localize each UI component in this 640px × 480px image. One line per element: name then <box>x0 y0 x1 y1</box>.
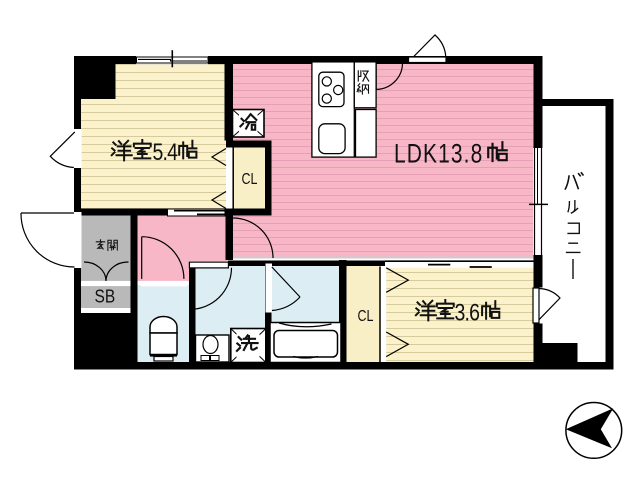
svg-text:5.4: 5.4 <box>153 138 178 166</box>
svg-text:3.6: 3.6 <box>455 299 480 327</box>
svg-text:CL: CL <box>358 307 374 325</box>
svg-text:CL: CL <box>242 169 258 187</box>
svg-text:LDK13.8: LDK13.8 <box>394 139 483 169</box>
svg-text:SB: SB <box>95 286 116 307</box>
